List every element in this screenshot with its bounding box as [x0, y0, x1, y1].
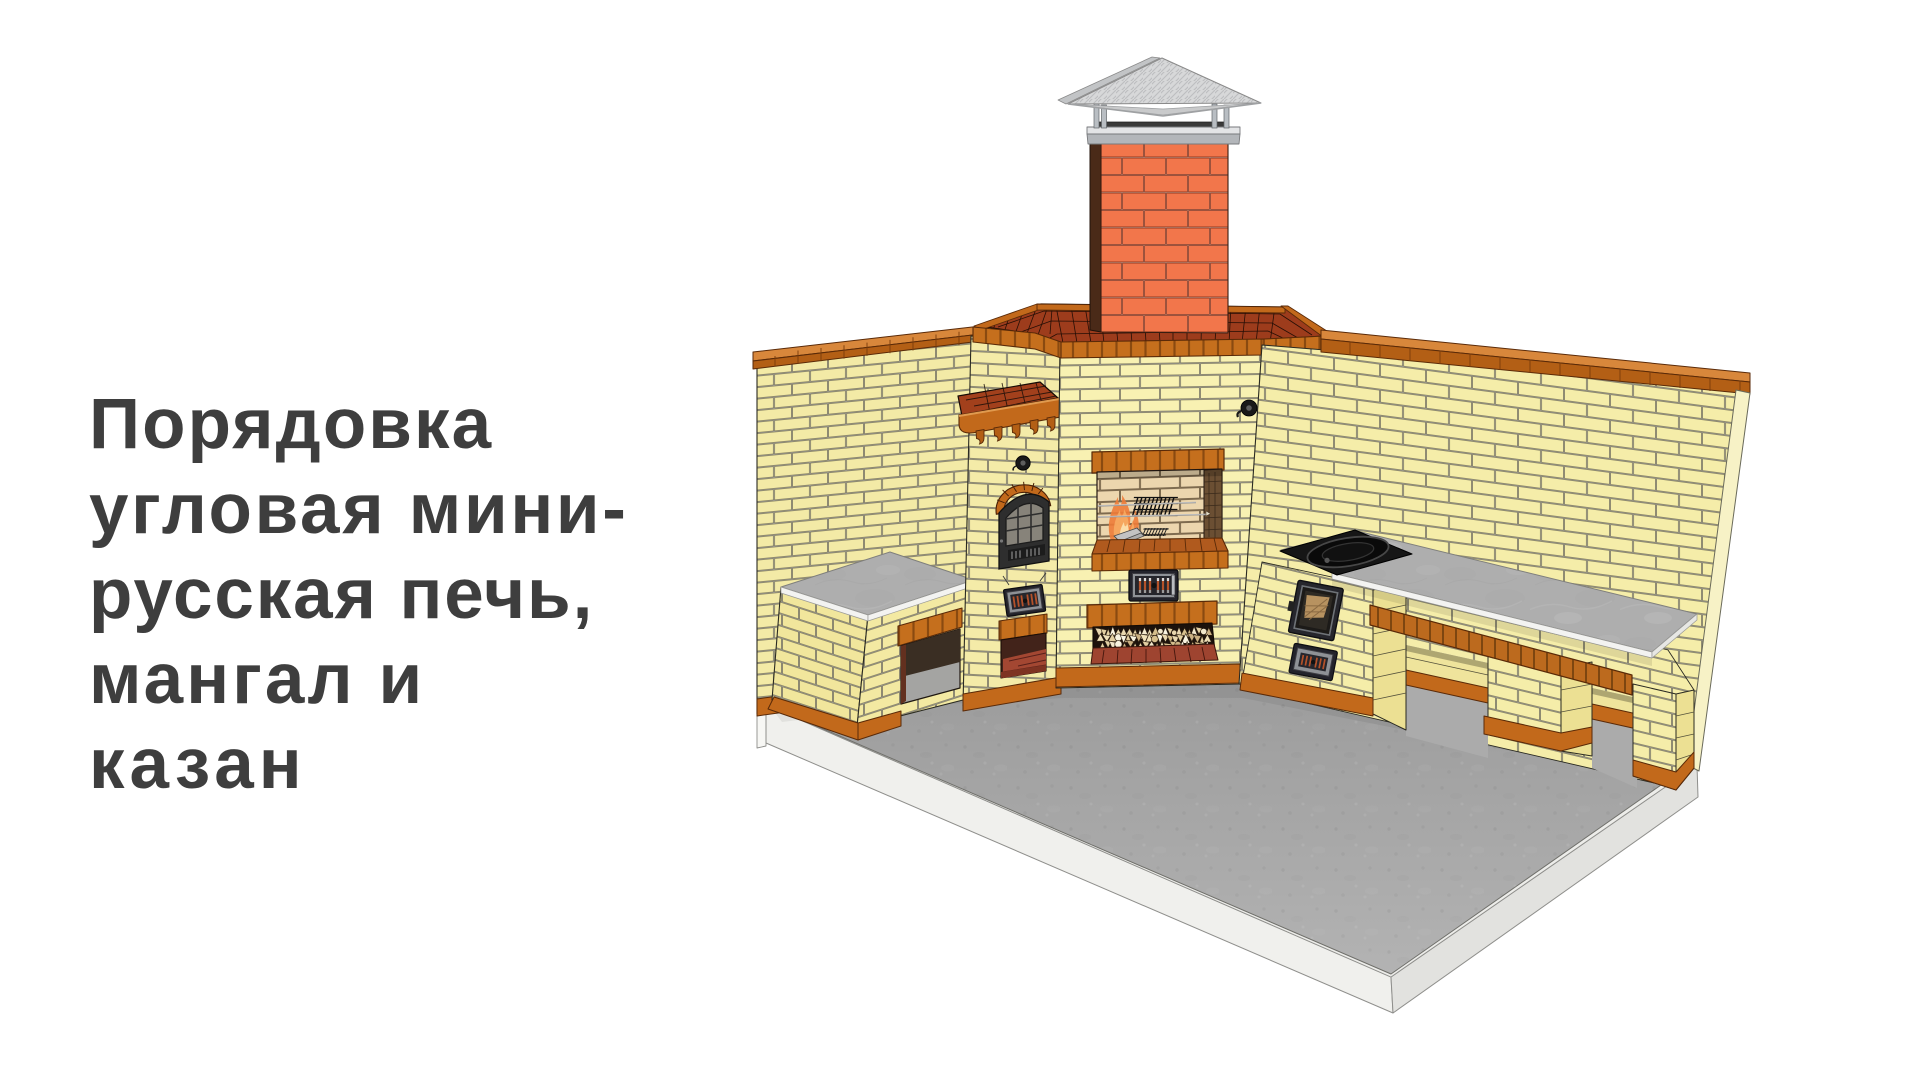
svg-text:угловая мини-: угловая мини- [89, 470, 629, 549]
svg-text:Порядовка: Порядовка [89, 385, 493, 464]
svg-text:русская печь,: русская печь, [89, 555, 594, 634]
svg-text:мангал и: мангал и [89, 640, 425, 719]
svg-text:казан: казан [89, 725, 307, 804]
